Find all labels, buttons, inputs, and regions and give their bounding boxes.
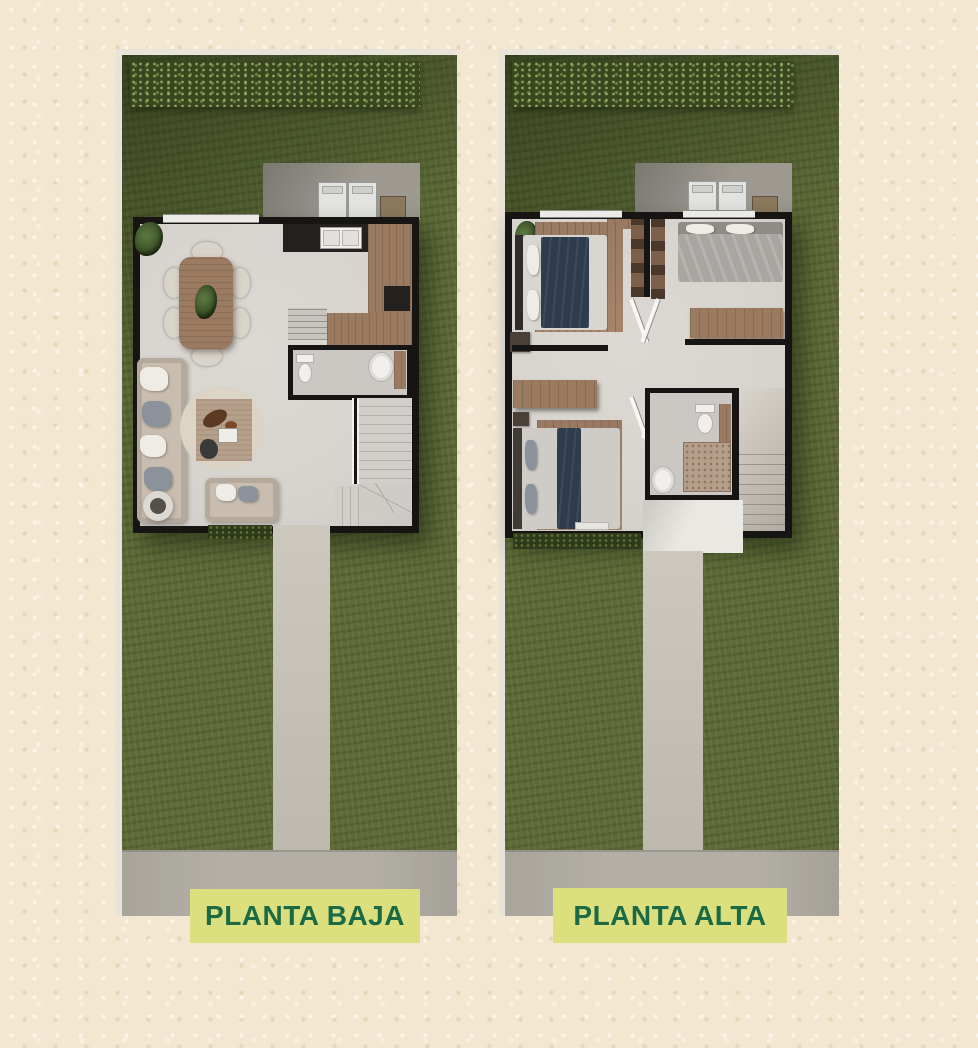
sink-basin (342, 230, 359, 246)
bed-bench (575, 522, 609, 530)
bed-pillow (525, 484, 537, 514)
kitchen-sink (320, 227, 362, 249)
bedroom-2-dresser (690, 308, 783, 338)
entry-walkway (273, 525, 330, 850)
dryer (348, 182, 377, 218)
table-lamp (150, 498, 166, 514)
floor-label-planta-alta: PLANTA ALTA (553, 888, 787, 943)
door-leaf (640, 298, 660, 343)
sink-basin (323, 230, 340, 246)
duvet (678, 234, 783, 282)
floor-plan-poster: PLANTA BAJA PLANTA ALTA (0, 0, 978, 1048)
bedroom-2-bed (678, 222, 783, 282)
throw-pillow (142, 401, 170, 427)
kitchen-counter-bottom (327, 313, 412, 348)
bed-pillow (686, 224, 714, 234)
throw-pillow (216, 484, 236, 501)
washer-lid (322, 186, 343, 194)
headboard (515, 235, 523, 330)
bed-pillow (726, 224, 754, 234)
toilet-bowl (298, 363, 312, 383)
window (683, 210, 755, 218)
shower-floor (683, 442, 731, 492)
hedge-row (130, 61, 420, 107)
staircase-winder (359, 483, 412, 513)
entry-porch (643, 500, 743, 553)
front-shrubs (208, 525, 272, 539)
toilet (695, 404, 715, 434)
bath-vanity (394, 351, 406, 389)
lavatory (651, 466, 675, 494)
interior-wall (685, 339, 787, 345)
dryer-lid (352, 186, 373, 194)
throw-pillow (238, 486, 258, 502)
bedroom-2-closet (651, 219, 665, 299)
staircase-lower-run (335, 486, 360, 526)
bed-pillow (525, 440, 537, 470)
stove (384, 286, 410, 311)
toilet (296, 354, 314, 383)
interior-wall (512, 345, 608, 351)
coffee-table-tray (218, 428, 238, 443)
headboard (513, 428, 522, 529)
nightstand (513, 412, 529, 426)
dining-chair (230, 308, 250, 338)
window (540, 210, 622, 218)
dryer-lid (722, 185, 743, 193)
hedge-row (512, 61, 794, 107)
bedroom-3-dresser (513, 380, 597, 408)
dining-chair (230, 268, 250, 298)
coffee-table-decor (200, 439, 218, 459)
staircase-run (359, 398, 412, 483)
side-table (143, 491, 173, 521)
duvet (541, 237, 589, 328)
toilet-bowl (697, 413, 713, 434)
lavatory (368, 352, 394, 382)
bedroom-1-closet (631, 219, 644, 297)
bed-pillow (527, 290, 539, 320)
throw-pillow (140, 367, 168, 391)
toilet-tank (296, 354, 314, 363)
water-heater (380, 196, 406, 218)
window (163, 214, 259, 223)
interior-wall (644, 219, 650, 297)
floor-plan-planta-alta (505, 55, 839, 916)
throw-pillow (140, 435, 166, 457)
bedroom-1-bed (515, 235, 607, 330)
dining-chair (192, 346, 222, 366)
floor-label-planta-baja: PLANTA BAJA (190, 889, 420, 943)
bath-shelf (719, 404, 731, 442)
bed-pillow (527, 245, 539, 275)
floor-plan-planta-baja (122, 55, 457, 916)
throw-pillow (144, 467, 172, 491)
pantry-steps (288, 308, 327, 340)
washer-lid (692, 185, 713, 193)
entry-walkway (643, 551, 703, 850)
washer (318, 182, 347, 218)
stair-railing (352, 398, 359, 484)
bedroom-3-bed (513, 428, 620, 529)
toilet-tank (695, 404, 715, 413)
front-shrubs (513, 533, 641, 549)
bed-runner (557, 428, 581, 529)
staircase-steps (739, 445, 785, 531)
hallway-door-open (623, 299, 667, 347)
